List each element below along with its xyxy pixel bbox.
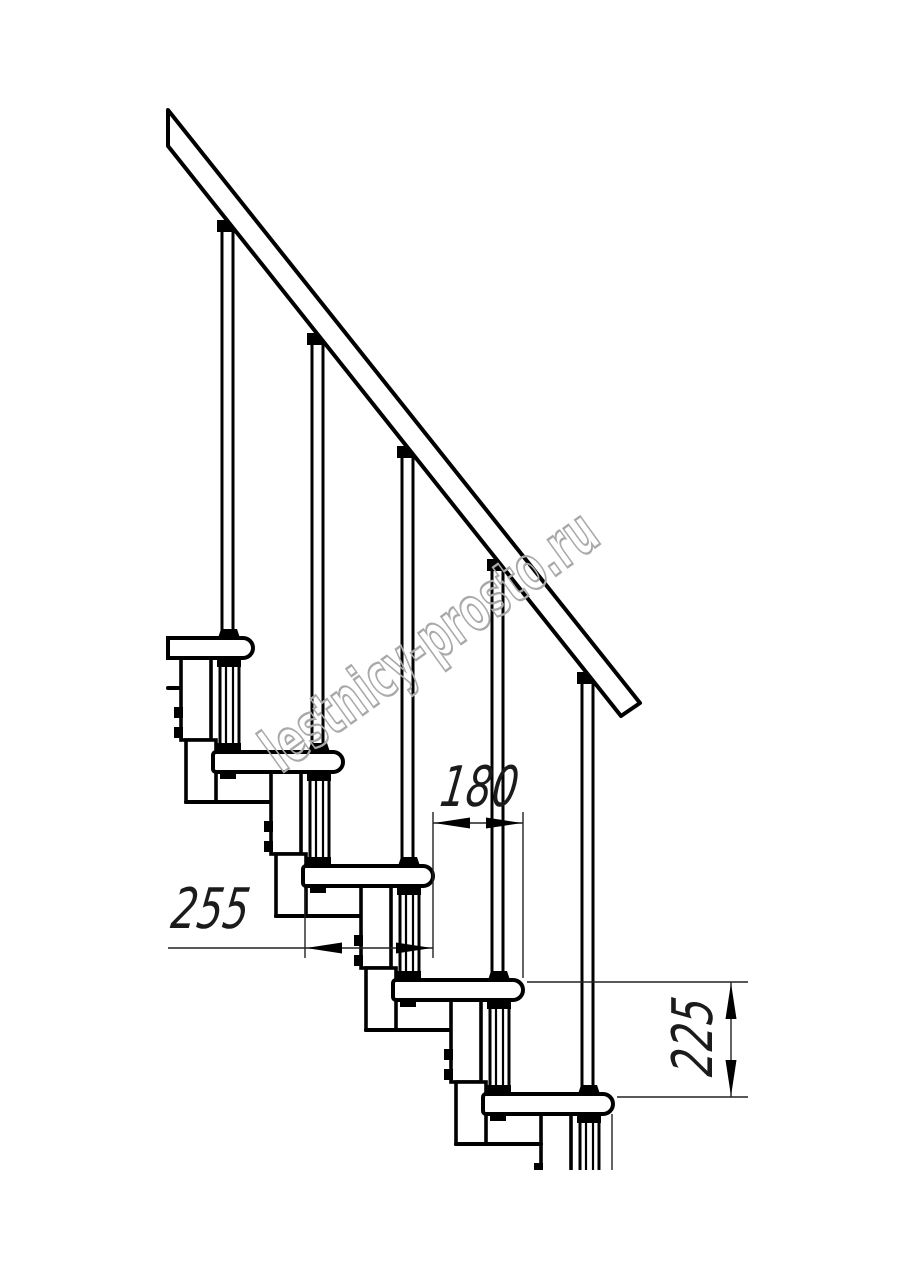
- tread: [393, 980, 523, 1000]
- module-column: [451, 1000, 481, 1082]
- module-column: [181, 658, 211, 740]
- arrowhead-left-icon: [306, 943, 342, 954]
- baluster-base-flange: [488, 971, 510, 980]
- arrowhead-up-icon: [726, 983, 737, 1019]
- clamp-bolt: [354, 955, 363, 966]
- module-column: [361, 886, 391, 968]
- dimension-label-255: 255: [168, 876, 254, 942]
- staircase-technical-drawing: 180 255 225 lestnicy-prosto.ru: [0, 0, 914, 1280]
- dimension-step-run-180: 180: [433, 754, 523, 978]
- clamp-bolt: [264, 821, 273, 832]
- tread: [303, 866, 433, 886]
- dimension-step-rise-225: 225: [527, 982, 748, 1097]
- baluster-base-flange: [218, 629, 240, 638]
- technical-drawing-page: 180 255 225 lestnicy-prosto.ru: [0, 0, 914, 1280]
- baluster-base-flange: [398, 857, 420, 866]
- clamp-bolt: [174, 727, 183, 738]
- clamp-bolt: [534, 1163, 543, 1170]
- clamp-bolt: [444, 1049, 453, 1060]
- tread: [483, 1094, 613, 1114]
- baluster-base-flange: [578, 1085, 600, 1094]
- clamp-bolt: [174, 707, 183, 718]
- dimension-label-225: 225: [660, 993, 726, 1079]
- dimension-label-180: 180: [437, 754, 523, 820]
- module-column: [271, 772, 301, 854]
- clamp-bolt: [264, 841, 273, 852]
- arrowhead-down-icon: [726, 1060, 737, 1096]
- clamp-bolt: [444, 1069, 453, 1080]
- clamp-bolt: [354, 935, 363, 946]
- watermark-text: lestnicy-prosto.ru: [248, 496, 613, 787]
- tread: [168, 638, 253, 658]
